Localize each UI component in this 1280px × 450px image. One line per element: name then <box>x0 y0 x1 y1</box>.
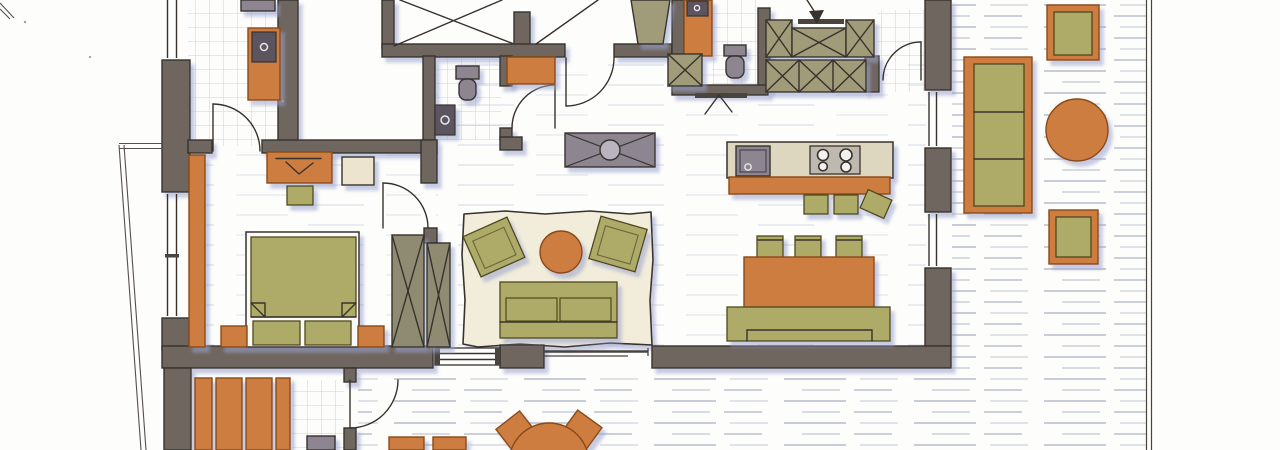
x-front-cabinet-single <box>668 54 702 86</box>
utility-appliance <box>241 0 275 11</box>
wc-toilet-bowl <box>726 56 744 78</box>
wall-hall-top-b <box>614 44 672 57</box>
wall-right-b <box>925 148 951 212</box>
wall-kitchen-stub <box>865 56 879 92</box>
bed <box>246 232 359 347</box>
wall-right-c <box>925 268 951 346</box>
island-base <box>729 177 890 194</box>
wall-bedroom-door-b <box>424 228 437 243</box>
tall-cabinet-row-2 <box>766 60 866 92</box>
terrace-round-table <box>1046 99 1108 161</box>
terrace-chair-bottom <box>1049 210 1098 264</box>
wall-right-a <box>925 0 951 90</box>
wall-bedroom-top-a <box>188 140 212 153</box>
terrace-sofa <box>964 57 1032 213</box>
wall-void-left <box>382 0 394 48</box>
wall-sauna-left <box>164 368 191 450</box>
wall-bottom-mid <box>500 345 544 368</box>
desk-stool <box>287 186 313 205</box>
wall-wc-left <box>672 0 684 56</box>
entry-tiles <box>878 10 924 92</box>
wall-bedroom-top-b <box>262 140 437 153</box>
wall-left-lower <box>162 318 190 350</box>
patio-stool-2 <box>433 437 466 450</box>
wall-bottom-left <box>162 346 433 368</box>
bed-cushion-left <box>253 321 300 345</box>
angled-tall-cabinet <box>631 0 670 44</box>
wall-bedroom-door-a <box>421 140 437 183</box>
wall-hall-top-a <box>382 44 565 57</box>
patio-stool-1 <box>389 437 424 450</box>
sauna-stove <box>307 436 335 450</box>
fireplace-flue-circle <box>600 140 620 160</box>
floor-plan-drawing <box>0 0 1280 450</box>
fireplace <box>565 133 655 167</box>
bed-cushion-right <box>305 321 351 345</box>
builtin-closet-strip <box>189 155 205 347</box>
floor-plan <box>0 0 1280 450</box>
wc-cabinet-sink <box>687 1 708 16</box>
sofa <box>500 282 617 338</box>
desk <box>267 152 332 183</box>
coffee-table <box>540 231 582 273</box>
hall-sideboard <box>507 57 555 84</box>
wall-bottom-right <box>652 346 951 368</box>
wall-sauna-door-b <box>344 428 356 450</box>
toilet-tank <box>456 66 479 79</box>
wardrobe <box>392 235 450 347</box>
dining-table <box>744 257 874 308</box>
entry-doormat <box>798 19 844 24</box>
window-terrace-door <box>435 348 500 365</box>
nightstand-left <box>221 326 247 347</box>
terrace-chair-top <box>1047 5 1099 60</box>
nightstand-right <box>358 326 384 347</box>
wc-toilet-tank <box>724 45 746 56</box>
wall-bathroom-left <box>423 56 435 140</box>
dining-bench <box>727 307 890 341</box>
bathroom-sink <box>435 105 455 135</box>
utility-sink <box>252 32 276 62</box>
wall-fireplace-stub <box>500 137 522 150</box>
bed-mattress <box>251 237 356 317</box>
wall-left-upper <box>162 60 190 192</box>
cooktop <box>810 146 860 174</box>
wall-utility-right <box>278 0 298 142</box>
bedroom-sideboard <box>342 157 374 185</box>
toilet-bowl <box>459 79 476 100</box>
